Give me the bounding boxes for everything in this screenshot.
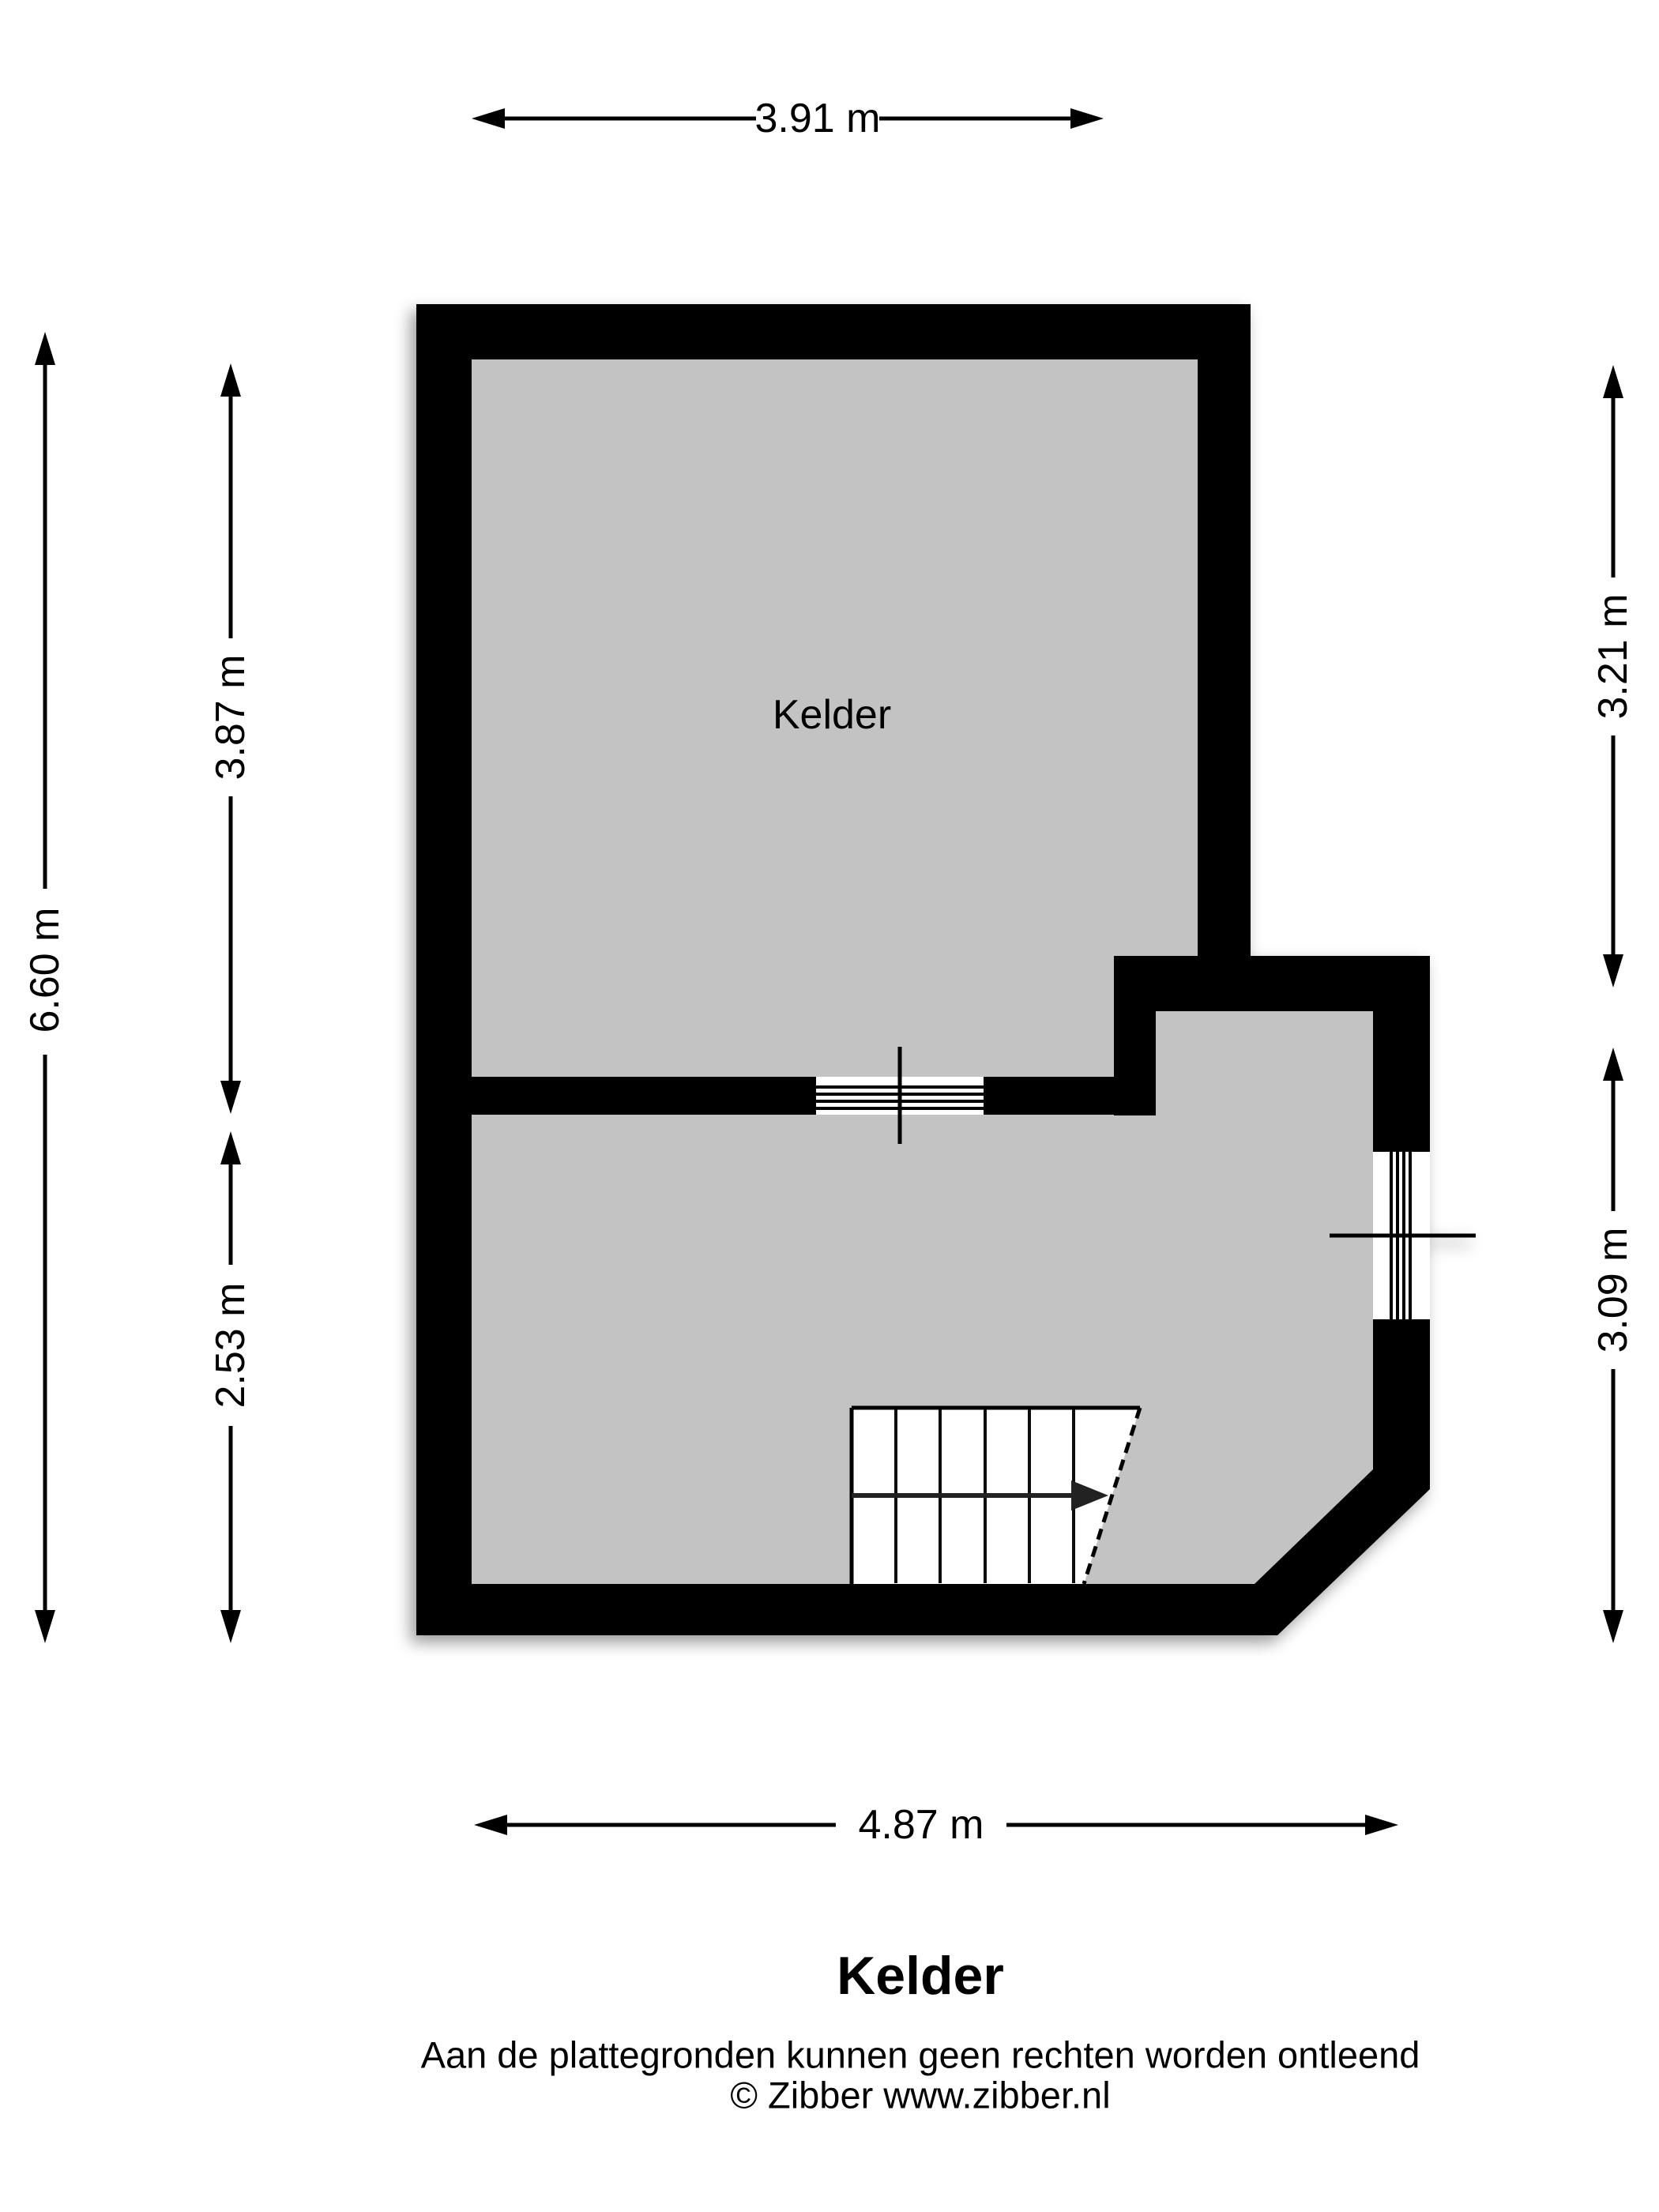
arrow-down-icon: [35, 1610, 55, 1643]
arrow-down-icon: [220, 1081, 241, 1114]
arrow-left-icon: [472, 108, 505, 129]
dimension-right-lower-label: 3.09 m: [1590, 1228, 1636, 1353]
dimension-left-lower: 2.53 m: [208, 1131, 254, 1643]
arrow-up-icon: [220, 363, 241, 397]
dimension-right-upper: 3.21 m: [1590, 365, 1636, 987]
dimension-left-lower-label: 2.53 m: [208, 1283, 254, 1409]
arrow-up-icon: [220, 1131, 241, 1164]
floor-plan: Kelder: [416, 304, 1476, 1635]
room-label: Kelder: [773, 692, 891, 738]
dimension-bottom: 4.87 m: [474, 1802, 1398, 1848]
dimension-left-upper-label: 3.87 m: [208, 655, 254, 781]
dimension-left-total: 6.60 m: [22, 332, 68, 1643]
dimension-left-total-label: 6.60 m: [22, 908, 68, 1033]
disclaimer-text: Aan de plattegronden kunnen geen rechten…: [421, 2034, 1420, 2076]
dimension-bottom-label: 4.87 m: [859, 1802, 984, 1848]
dimension-right-upper-label: 3.21 m: [1590, 594, 1636, 720]
arrow-down-icon: [1603, 1610, 1623, 1643]
page-title: Kelder: [837, 1946, 1004, 2006]
arrow-up-icon: [35, 332, 55, 365]
floor-plan-canvas: Kelder 3.91 m 6.60 m 3.87 m 2.53 m 3: [0, 0, 1659, 2212]
arrow-up-icon: [1603, 1048, 1623, 1081]
notch-wall: [1114, 956, 1430, 1011]
arrow-right-icon: [1365, 1815, 1398, 1835]
arrow-right-icon: [1070, 108, 1104, 129]
dimension-top: 3.91 m: [472, 96, 1104, 141]
arrow-down-icon: [1603, 954, 1623, 987]
arrow-down-icon: [220, 1610, 241, 1643]
floor-plan-page: Kelder 3.91 m 6.60 m 3.87 m 2.53 m 3: [0, 0, 1659, 2212]
dimension-right-lower: 3.09 m: [1590, 1048, 1636, 1643]
arrow-up-icon: [1603, 365, 1623, 398]
arrow-left-icon: [474, 1815, 507, 1835]
dimension-left-upper: 3.87 m: [208, 363, 254, 1114]
interior-wall: [416, 1077, 1156, 1115]
copyright-text: © Zibber www.zibber.nl: [730, 2075, 1110, 2116]
dimension-top-label: 3.91 m: [755, 96, 881, 141]
